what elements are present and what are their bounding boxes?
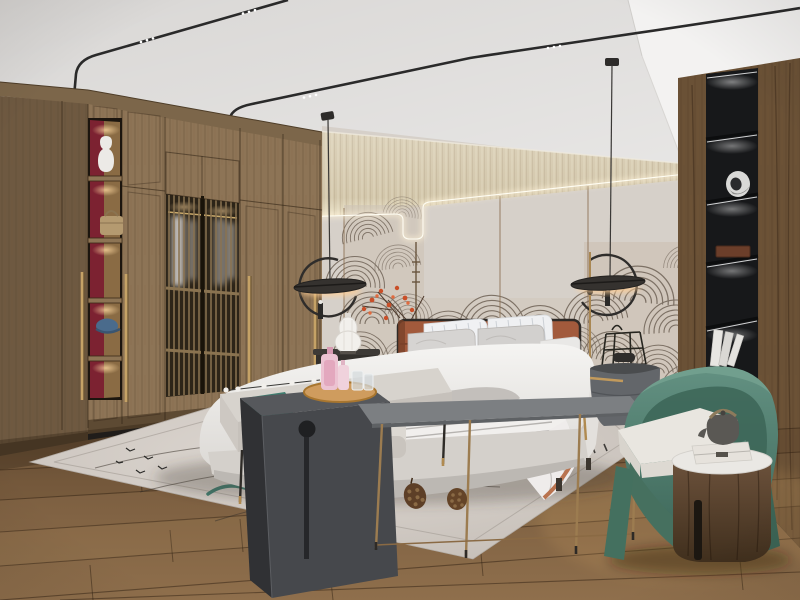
display-niches [88, 118, 123, 400]
glasses [352, 371, 373, 390]
wooden-box [716, 246, 750, 257]
white-gift-box [692, 442, 752, 464]
white-vase [98, 136, 114, 172]
bedroom-3d-render [0, 0, 800, 600]
abstract-sculpture [726, 171, 750, 197]
